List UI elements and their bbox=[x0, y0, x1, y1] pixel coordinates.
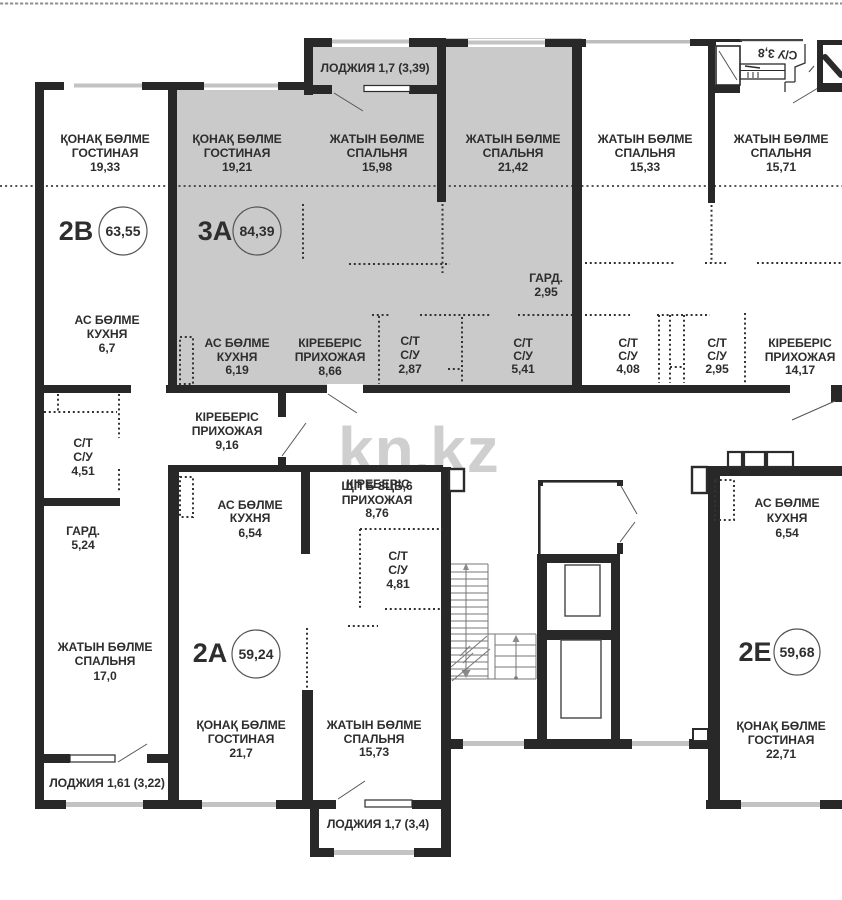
svg-text:С/Т: С/Т bbox=[388, 549, 408, 563]
svg-text:СПАЛЬНЯ: СПАЛЬНЯ bbox=[344, 732, 405, 746]
svg-text:15,71: 15,71 bbox=[766, 160, 796, 174]
svg-text:ЖАТЫН БӨЛМЕ: ЖАТЫН БӨЛМЕ bbox=[57, 640, 153, 654]
svg-text:ЖАТЫН БӨЛМЕ: ЖАТЫН БӨЛМЕ bbox=[326, 718, 422, 732]
svg-text:ЖАТЫН БӨЛМЕ: ЖАТЫН БӨЛМЕ bbox=[329, 132, 425, 146]
svg-text:СПАЛЬНЯ: СПАЛЬНЯ bbox=[751, 146, 812, 160]
svg-text:ЖАТЫН БӨЛМЕ: ЖАТЫН БӨЛМЕ bbox=[733, 132, 829, 146]
svg-text:АС БӨЛМЕ: АС БӨЛМЕ bbox=[75, 313, 140, 327]
svg-text:С/У: С/У bbox=[400, 348, 420, 362]
svg-text:С/У: С/У bbox=[513, 349, 533, 363]
svg-text:СПАЛЬНЯ: СПАЛЬНЯ bbox=[483, 146, 544, 160]
svg-text:КУХНЯ: КУХНЯ bbox=[230, 511, 271, 525]
svg-text:СПАЛЬНЯ: СПАЛЬНЯ bbox=[615, 146, 676, 160]
svg-text:63,55: 63,55 bbox=[105, 223, 140, 239]
svg-text:С/Т: С/Т bbox=[73, 436, 93, 450]
svg-text:2,87: 2,87 bbox=[398, 362, 422, 376]
svg-text:АС БӨЛМЕ: АС БӨЛМЕ bbox=[218, 498, 283, 512]
svg-text:С/Т: С/Т bbox=[400, 334, 420, 348]
svg-text:15,33: 15,33 bbox=[630, 160, 660, 174]
svg-text:С/Т: С/Т bbox=[707, 336, 727, 350]
svg-text:4,81: 4,81 bbox=[386, 577, 410, 591]
svg-text:АС БӨЛМЕ: АС БӨЛМЕ bbox=[205, 336, 270, 350]
svg-text:6,54: 6,54 bbox=[238, 526, 262, 540]
svg-text:6,7: 6,7 bbox=[99, 341, 116, 355]
svg-text:21,7: 21,7 bbox=[229, 746, 253, 760]
svg-text:17,0: 17,0 bbox=[93, 669, 117, 683]
svg-text:ГАРД.: ГАРД. bbox=[66, 524, 100, 538]
svg-text:ҚОНАҚ БӨЛМЕ: ҚОНАҚ БӨЛМЕ bbox=[736, 719, 825, 733]
svg-text:КУХНЯ: КУХНЯ bbox=[217, 350, 258, 364]
svg-text:2Е: 2Е bbox=[738, 637, 771, 667]
svg-text:4,08: 4,08 bbox=[616, 362, 640, 376]
svg-text:С/У: С/У bbox=[707, 349, 727, 363]
svg-text:ЛОДЖИЯ 1,7 (3,4): ЛОДЖИЯ 1,7 (3,4) bbox=[327, 817, 429, 831]
svg-text:ЖАТЫН БӨЛМЕ: ЖАТЫН БӨЛМЕ bbox=[465, 132, 561, 146]
svg-text:6,19: 6,19 bbox=[225, 363, 249, 377]
svg-text:2В: 2В bbox=[59, 216, 94, 246]
svg-text:84,39: 84,39 bbox=[239, 223, 274, 239]
svg-text:2,95: 2,95 bbox=[534, 285, 558, 299]
svg-text:19,33: 19,33 bbox=[90, 160, 120, 174]
svg-text:ЛОДЖИЯ 1,7 (3,39): ЛОДЖИЯ 1,7 (3,39) bbox=[321, 61, 430, 75]
svg-text:ГОСТИНАЯ: ГОСТИНАЯ bbox=[204, 146, 271, 160]
svg-text:КУХНЯ: КУХНЯ bbox=[87, 327, 128, 341]
svg-text:3А: 3А bbox=[198, 216, 233, 246]
svg-text:ГОСТИНАЯ: ГОСТИНАЯ bbox=[748, 733, 815, 747]
svg-text:2,95: 2,95 bbox=[705, 362, 729, 376]
svg-text:ПРИХОЖАЯ: ПРИХОЖАЯ bbox=[192, 424, 263, 438]
svg-text:5,24: 5,24 bbox=[71, 538, 95, 552]
svg-text:КІРЕБЕРІС: КІРЕБЕРІС bbox=[768, 336, 832, 350]
svg-text:КІРЕБЕРІС: КІРЕБЕРІС bbox=[195, 410, 259, 424]
svg-text:КУХНЯ: КУХНЯ bbox=[767, 511, 808, 525]
svg-text:С/У: С/У bbox=[388, 563, 408, 577]
svg-text:ГОСТИНАЯ: ГОСТИНАЯ bbox=[72, 146, 139, 160]
svg-text:ЖАТЫН БӨЛМЕ: ЖАТЫН БӨЛМЕ bbox=[597, 132, 693, 146]
svg-text:КІРЕБЕРІС: КІРЕБЕРІС bbox=[298, 336, 362, 350]
svg-text:АС БӨЛМЕ: АС БӨЛМЕ bbox=[755, 496, 820, 510]
svg-text:19,21: 19,21 bbox=[222, 160, 252, 174]
svg-text:ҚОНАҚ БӨЛМЕ: ҚОНАҚ БӨЛМЕ bbox=[196, 718, 285, 732]
svg-text:ГАРД.: ГАРД. bbox=[529, 271, 563, 285]
svg-text:С/У 3,8: С/У 3,8 bbox=[757, 46, 798, 63]
svg-text:С/Т: С/Т bbox=[618, 336, 638, 350]
svg-text:КІРЕБЕРІС: КІРЕБЕРІС bbox=[346, 477, 410, 491]
svg-text:ЛОДЖИЯ 1,61 (3,22): ЛОДЖИЯ 1,61 (3,22) bbox=[49, 776, 165, 790]
svg-text:ҚОНАҚ БӨЛМЕ: ҚОНАҚ БӨЛМЕ bbox=[60, 132, 149, 146]
svg-text:9,16: 9,16 bbox=[215, 438, 239, 452]
svg-text:ПРИХОЖАЯ: ПРИХОЖАЯ bbox=[765, 350, 836, 364]
svg-text:5,41: 5,41 bbox=[511, 362, 535, 376]
svg-text:8,66: 8,66 bbox=[318, 364, 342, 378]
svg-text:С/Т: С/Т bbox=[513, 336, 533, 350]
svg-text:ҚОНАҚ БӨЛМЕ: ҚОНАҚ БӨЛМЕ bbox=[192, 132, 281, 146]
svg-text:СПАЛЬНЯ: СПАЛЬНЯ bbox=[75, 654, 136, 668]
svg-text:6,54: 6,54 bbox=[775, 526, 799, 540]
svg-text:15,98: 15,98 bbox=[362, 160, 392, 174]
svg-text:14,17: 14,17 bbox=[785, 363, 815, 377]
svg-text:С/У: С/У bbox=[73, 450, 93, 464]
svg-text:59,24: 59,24 bbox=[238, 646, 273, 662]
svg-text:4,51: 4,51 bbox=[71, 464, 95, 478]
svg-text:С/У: С/У bbox=[618, 349, 638, 363]
svg-text:22,71: 22,71 bbox=[766, 747, 796, 761]
svg-text:ГОСТИНАЯ: ГОСТИНАЯ bbox=[208, 732, 275, 746]
svg-text:15,73: 15,73 bbox=[359, 745, 389, 759]
svg-text:2А: 2А bbox=[193, 638, 228, 668]
svg-text:59,68: 59,68 bbox=[779, 644, 814, 660]
svg-text:ПРИХОЖАЯ: ПРИХОЖАЯ bbox=[342, 493, 413, 507]
svg-text:8,76: 8,76 bbox=[365, 506, 389, 520]
svg-text:21,42: 21,42 bbox=[498, 160, 528, 174]
svg-text:СПАЛЬНЯ: СПАЛЬНЯ bbox=[347, 146, 408, 160]
svg-text:ПРИХОЖАЯ: ПРИХОЖАЯ bbox=[295, 350, 366, 364]
